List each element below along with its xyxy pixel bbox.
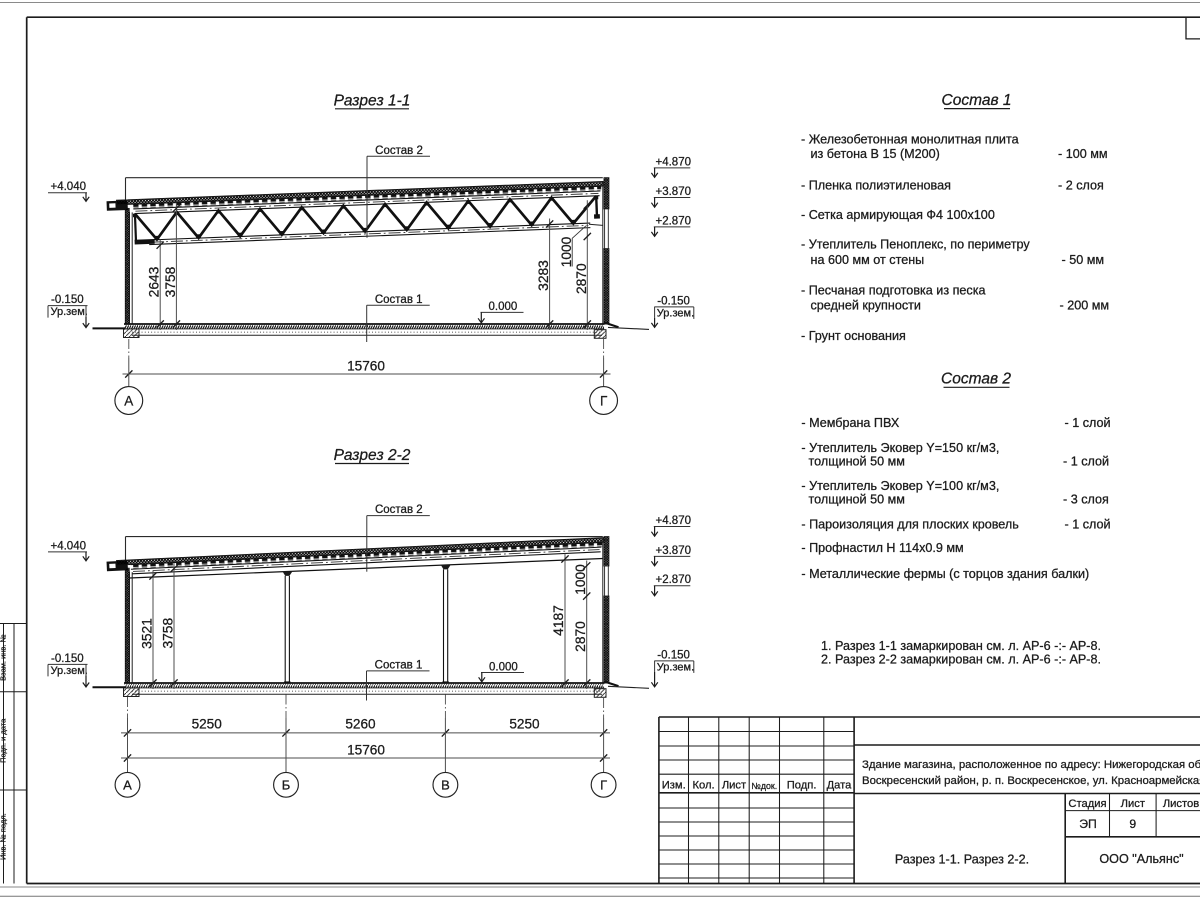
svg-text:Разрез 1-1. Разрез 2-2.: Разрез 1-1. Разрез 2-2. bbox=[895, 852, 1029, 866]
svg-text:- Сетка армирующая Ф4 100х100: - Сетка армирующая Ф4 100х100 bbox=[801, 208, 995, 222]
svg-text:- Железобетонная монолитная п: - Железобетонная монолитная плита bbox=[801, 133, 1019, 147]
svg-text:Дата: Дата bbox=[827, 779, 853, 791]
svg-text:1000: 1000 bbox=[573, 564, 588, 595]
svg-text:- Утеплитель Эковер Y=100 кг/м: - Утеплитель Эковер Y=100 кг/м3, bbox=[801, 479, 999, 493]
svg-text:9: 9 bbox=[1129, 817, 1136, 831]
svg-text:- Мембрана ПВХ: - Мембрана ПВХ bbox=[801, 416, 899, 430]
svg-text:Г: Г bbox=[600, 777, 607, 792]
svg-text:Лист: Лист bbox=[722, 779, 746, 791]
svg-text:ЭП: ЭП bbox=[1079, 817, 1097, 831]
svg-text:Листов: Листов bbox=[1163, 798, 1199, 810]
svg-text:-0.150: -0.150 bbox=[657, 649, 690, 661]
svg-text:- Профнастил Н 114х0.9 мм: - Профнастил Н 114х0.9 мм bbox=[801, 541, 963, 555]
svg-text:2870: 2870 bbox=[574, 263, 589, 294]
svg-text:Инв. № подл.: Инв. № подл. bbox=[0, 813, 8, 860]
svg-text:1000: 1000 bbox=[559, 236, 574, 267]
svg-text:5250: 5250 bbox=[509, 717, 540, 732]
svg-text:- Пленка полиэтиленовая: - Пленка полиэтиленовая bbox=[801, 178, 951, 192]
svg-text:Ур.зем.: Ур.зем. bbox=[51, 665, 88, 677]
svg-text:- 3 слоя: - 3 слоя bbox=[1063, 492, 1109, 506]
svg-text:- Утеплитель Эковер Y=150 кг/м: - Утеплитель Эковер Y=150 кг/м3, bbox=[801, 441, 999, 455]
svg-text:- 2 слоя: - 2 слоя bbox=[1058, 178, 1104, 192]
svg-text:Состав 1: Состав 1 bbox=[375, 294, 423, 306]
svg-text:-0.150: -0.150 bbox=[51, 294, 84, 306]
svg-text:4187: 4187 bbox=[551, 605, 566, 636]
svg-text:5250: 5250 bbox=[192, 717, 223, 732]
svg-text:3283: 3283 bbox=[536, 260, 551, 291]
svg-text:2643: 2643 bbox=[147, 266, 162, 297]
svg-text:+4.870: +4.870 bbox=[656, 156, 692, 168]
svg-text:- 100 мм: - 100 мм bbox=[1058, 147, 1108, 161]
svg-text:Подп.: Подп. bbox=[787, 779, 817, 791]
svg-text:- 1 слой: - 1 слой bbox=[1065, 416, 1111, 430]
svg-text:Лист: Лист bbox=[1121, 798, 1145, 810]
svg-text:- Грунт основания: - Грунт основания bbox=[801, 329, 906, 343]
svg-text:+4.870: +4.870 bbox=[656, 515, 692, 527]
svg-text:-0.150: -0.150 bbox=[51, 653, 84, 665]
svg-text:+2.870: +2.870 bbox=[656, 215, 692, 227]
svg-text:А: А bbox=[124, 393, 133, 408]
svg-text:Разрез 2-2: Разрез 2-2 bbox=[334, 447, 411, 464]
svg-text:15760: 15760 bbox=[347, 358, 385, 373]
svg-text:Состав 2: Состав 2 bbox=[375, 145, 423, 157]
svg-text:Изм.: Изм. bbox=[662, 779, 686, 791]
svg-text:- Пароизоляция для плоских кро: - Пароизоляция для плоских кровель bbox=[801, 517, 1019, 531]
svg-text:- Утеплитель Пеноплекс, по пер: - Утеплитель Пеноплекс, по периметру bbox=[801, 238, 1030, 252]
svg-text:- Металлические фермы (с торцо: - Металлические фермы (с торцов здания б… bbox=[801, 567, 1089, 581]
svg-text:3758: 3758 bbox=[161, 618, 176, 649]
svg-text:- 1 слой: - 1 слой bbox=[1063, 454, 1109, 468]
svg-text:Г: Г bbox=[600, 393, 608, 408]
svg-text:-0.150: -0.150 bbox=[657, 295, 690, 307]
svg-text:Ур.зем.: Ур.зем. bbox=[657, 307, 694, 319]
svg-text:15760: 15760 bbox=[347, 742, 385, 757]
svg-text:Кол.: Кол. bbox=[693, 779, 715, 791]
svg-text:- Песчаная подготовка из песка: - Песчаная подготовка из песка bbox=[801, 283, 986, 297]
svg-text:0.000: 0.000 bbox=[489, 301, 518, 313]
svg-text:В: В bbox=[441, 777, 450, 792]
svg-text:- 1 слой: - 1 слой bbox=[1065, 517, 1111, 531]
svg-text:ООО "Альянс": ООО "Альянс" bbox=[1099, 852, 1183, 866]
svg-text:Состав 2: Состав 2 bbox=[941, 371, 1011, 388]
svg-text:Ур.зем.: Ур.зем. bbox=[657, 661, 694, 673]
svg-text:Здание магазина, расположенное: Здание магазина, расположенное по адресу… bbox=[862, 759, 1200, 771]
svg-text:средней крупности: средней крупности bbox=[811, 299, 921, 313]
svg-text:толщиной 50 мм: толщиной 50 мм bbox=[809, 454, 905, 468]
svg-text:Воскресенский район, р. п. Вос: Воскресенский район, р. п. Воскресенское… bbox=[862, 775, 1200, 787]
svg-text:№док.: №док. bbox=[751, 781, 777, 791]
svg-text:из бетона В 15 (М200): из бетона В 15 (М200) bbox=[811, 147, 940, 161]
svg-text:Разрез 1-1: Разрез 1-1 bbox=[334, 93, 411, 110]
svg-text:1. Разрез 1-1 замаркирован см.: 1. Разрез 1-1 замаркирован см. л. АР-6 -… bbox=[821, 639, 1101, 653]
svg-text:5260: 5260 bbox=[345, 717, 376, 732]
svg-text:Стадия: Стадия bbox=[1068, 798, 1106, 810]
svg-text:Состав 1: Состав 1 bbox=[942, 92, 1012, 109]
svg-text:Состав 2: Состав 2 bbox=[375, 504, 423, 516]
svg-text:- 50 мм: - 50 мм bbox=[1062, 253, 1105, 267]
svg-text:3758: 3758 bbox=[163, 266, 178, 297]
svg-text:+3.870: +3.870 bbox=[656, 545, 692, 557]
svg-text:+2.870: +2.870 bbox=[656, 574, 692, 586]
svg-text:- 200 мм: - 200 мм bbox=[1060, 299, 1110, 313]
svg-text:Подп. и дата: Подп. и дата bbox=[0, 718, 8, 763]
svg-text:+4.040: +4.040 bbox=[51, 181, 87, 193]
svg-text:Взам. инв. №: Взам. инв. № bbox=[0, 634, 8, 680]
svg-text:А: А bbox=[123, 777, 132, 792]
svg-text:Ур.зем.: Ур.зем. bbox=[51, 306, 88, 318]
svg-text:+3.870: +3.870 bbox=[656, 186, 692, 198]
svg-text:Б: Б bbox=[282, 777, 291, 792]
svg-text:+4.040: +4.040 bbox=[51, 540, 87, 552]
svg-text:0.000: 0.000 bbox=[489, 661, 518, 673]
svg-text:2870: 2870 bbox=[573, 621, 588, 652]
svg-text:толщиной 50 мм: толщиной 50 мм bbox=[809, 492, 905, 506]
svg-text:на 600 мм от стены: на 600 мм от стены bbox=[811, 253, 925, 267]
svg-text:3521: 3521 bbox=[140, 618, 155, 649]
svg-text:Состав 1: Состав 1 bbox=[375, 660, 423, 672]
svg-text:2. Разрез 2-2 замаркирован см.: 2. Разрез 2-2 замаркирован см. л. АР-6 -… bbox=[821, 653, 1101, 667]
